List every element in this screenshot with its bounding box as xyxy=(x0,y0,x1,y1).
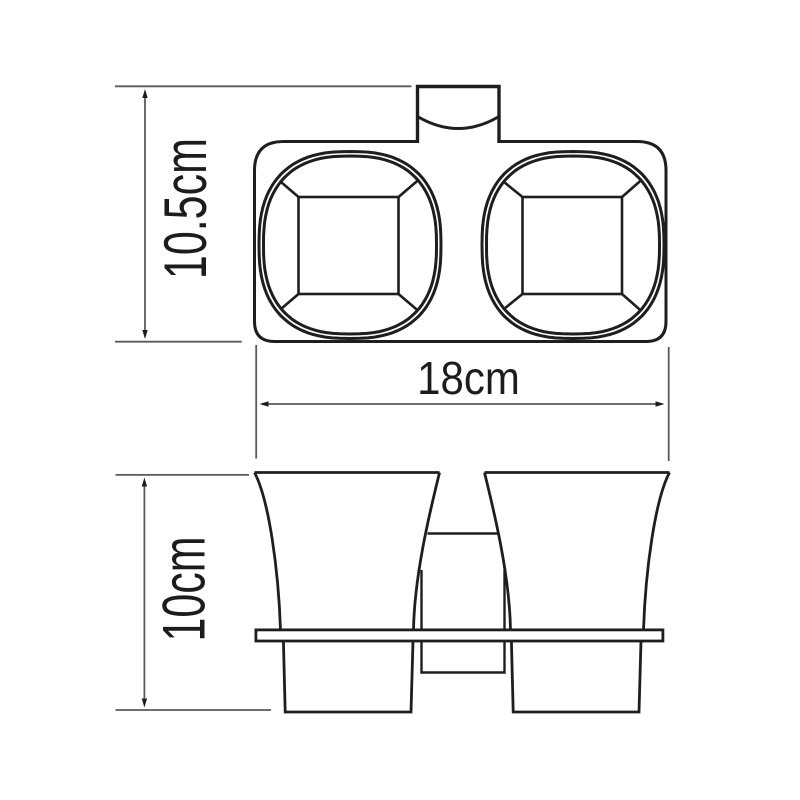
svg-text:10cm: 10cm xyxy=(152,536,219,641)
svg-text:18cm: 18cm xyxy=(417,353,520,404)
svg-text:10.5cm: 10.5cm xyxy=(153,138,220,279)
